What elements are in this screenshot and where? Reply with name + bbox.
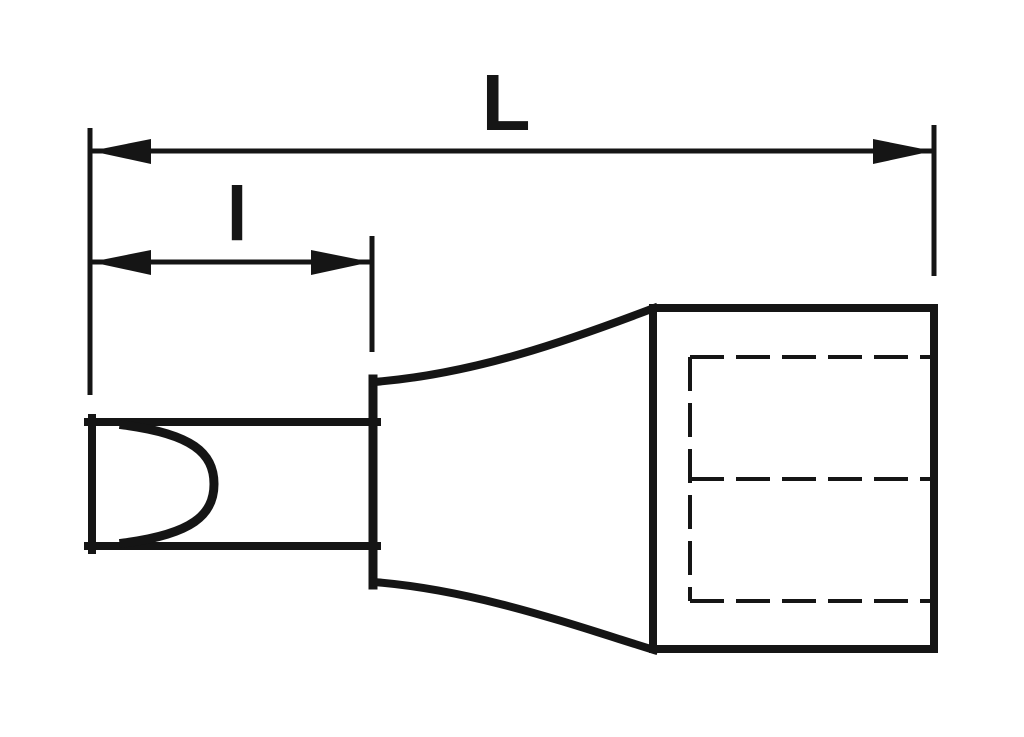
dimension-tip-length: l [91,172,372,352]
hub-bottom-taper [374,582,654,650]
hub-top-taper [374,308,654,382]
arrow-left [91,250,151,275]
overall-length-label: L [482,58,531,147]
tip-length-label: l [226,172,247,257]
blade-grind-curve [124,425,214,543]
drawing-page: L l [0,0,1024,737]
arrow-left [91,139,151,164]
arrow-right [311,250,371,275]
arrow-right [873,139,933,164]
socket-bit-technical-drawing: L l [0,0,1024,737]
